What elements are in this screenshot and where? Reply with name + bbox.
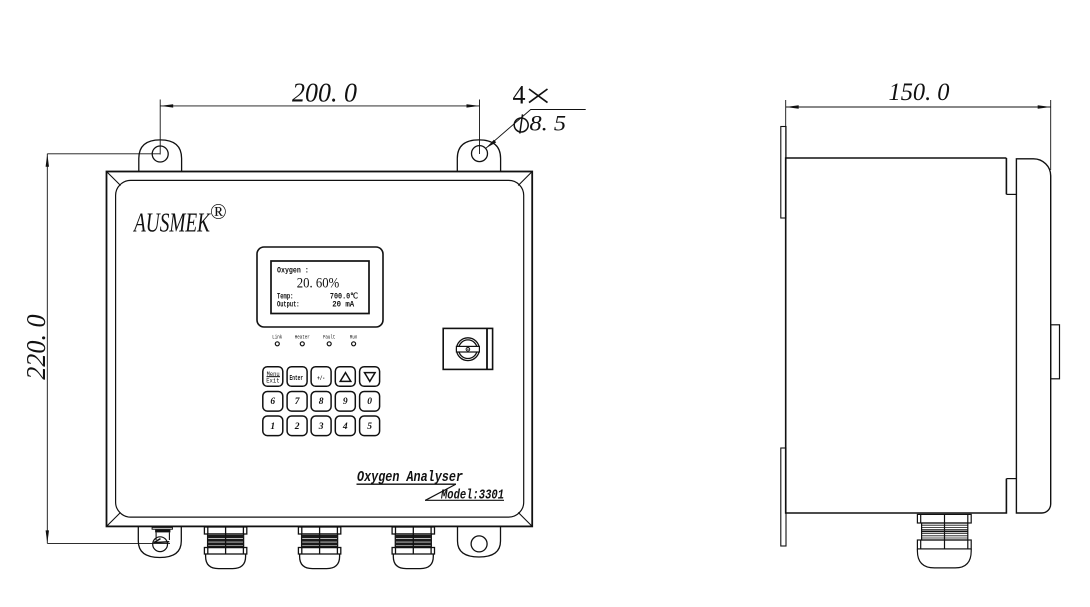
svg-text:Link: Link [272,335,282,341]
svg-text:AUSMEK: AUSMEK [133,207,212,237]
svg-text:20. 60%: 20. 60% [297,275,340,291]
svg-text:9: 9 [343,397,348,407]
svg-text:220. 0: 220. 0 [21,314,51,380]
svg-text:Enter: Enter [290,375,304,383]
svg-text:6: 6 [270,397,275,407]
svg-text:0: 0 [367,397,372,407]
svg-text:+/-: +/- [317,375,325,382]
svg-text:5: 5 [367,422,372,432]
svg-text:Fault: Fault [323,335,336,341]
svg-text:1: 1 [270,422,275,432]
svg-text:Output:: Output: [277,300,300,309]
svg-text:8. 5: 8. 5 [530,111,567,136]
svg-text:®: ® [210,199,227,224]
svg-text:3: 3 [318,422,324,432]
svg-text:4: 4 [513,80,526,109]
svg-text:8: 8 [319,397,324,407]
svg-text:Exit: Exit [266,377,279,384]
svg-text:20 mA: 20 mA [332,300,354,309]
svg-text:Model:3301: Model:3301 [440,489,504,504]
svg-text:Oxygen :: Oxygen : [277,267,309,276]
svg-text:150. 0: 150. 0 [889,79,950,106]
svg-text:2: 2 [294,422,300,432]
svg-text:4: 4 [342,422,348,432]
svg-text:Run: Run [350,335,358,341]
svg-text:Heater: Heater [295,335,310,341]
svg-text:200. 0: 200. 0 [292,78,357,108]
